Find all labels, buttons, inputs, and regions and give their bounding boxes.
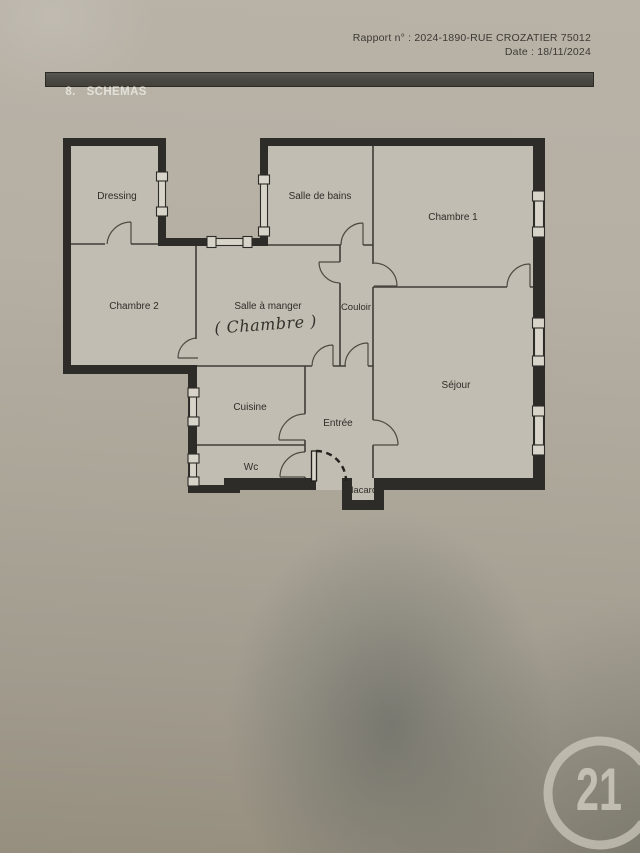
floor-plan: Dressing Salle de bains Chambre 1 Chambr… <box>0 0 640 853</box>
window-icon <box>533 191 545 237</box>
room-label-salle-de-bains: Salle de bains <box>289 191 352 202</box>
room-label-placard: Placard <box>345 485 377 496</box>
century21-logo-icon: 21 <box>536 728 640 853</box>
room-label-chambre-2: Chambre 2 <box>109 301 159 312</box>
room-label-salle-a-manger: Salle à manger <box>234 301 302 312</box>
room-label-entree: Entrée <box>323 418 353 429</box>
logo-21-text: 21 <box>576 756 622 823</box>
window-icon <box>157 172 168 216</box>
room-label-wc: Wc <box>244 462 258 473</box>
window-icon <box>533 406 545 455</box>
room-label-cuisine: Cuisine <box>233 402 267 413</box>
window-icon <box>533 318 545 366</box>
room-label-dressing: Dressing <box>97 191 136 202</box>
window-icon <box>259 175 270 236</box>
scanned-report-page: Rapport n° : 2024-1890-RUE CROZATIER 750… <box>0 0 640 853</box>
room-label-couloir: Couloir <box>341 302 371 313</box>
window-icon <box>207 237 252 248</box>
room-label-sejour: Séjour <box>442 380 472 391</box>
room-label-chambre-1: Chambre 1 <box>428 212 478 223</box>
